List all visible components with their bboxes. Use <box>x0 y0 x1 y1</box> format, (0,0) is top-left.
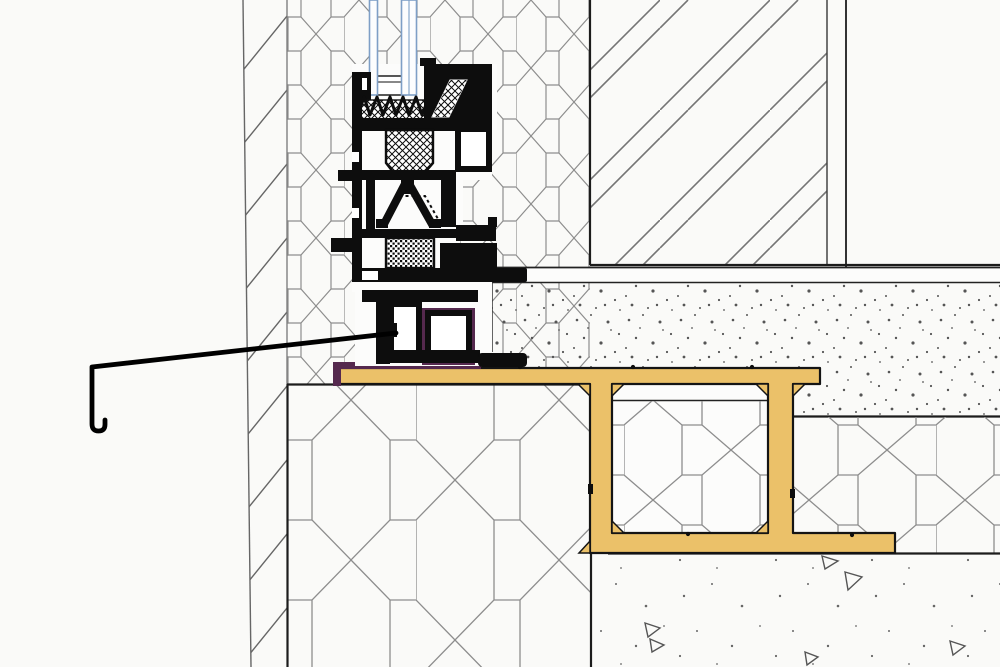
subsoil-stipple <box>592 554 1000 667</box>
foot-slot <box>362 271 378 280</box>
frame-left-wall <box>352 72 362 282</box>
thermal-break-grid-lower <box>386 238 434 268</box>
lower-insulation-block <box>287 384 592 667</box>
screed-stipple-right <box>793 368 1000 416</box>
linkage-hub <box>401 176 414 194</box>
technical-drawing <box>0 0 1000 667</box>
frame-foot-bar <box>352 268 527 282</box>
levelling-band <box>492 267 1000 283</box>
insulation-hatch-medium-channel <box>612 401 768 533</box>
base-plate <box>376 350 480 363</box>
left-wall-slot <box>352 208 359 218</box>
linkage-foot <box>376 219 388 228</box>
left-wall-slot <box>352 152 359 162</box>
linkage-foot <box>429 219 441 228</box>
frame-left-tab-upper <box>338 170 353 181</box>
frame-right-foot-mass <box>440 243 497 269</box>
screed-stipple-upper <box>492 283 1000 368</box>
insulation-hatch-large <box>287 384 590 667</box>
frame-strut-right <box>441 178 456 227</box>
sill-channel-interior <box>612 384 768 533</box>
frame-cross-bar-lower <box>362 229 460 238</box>
frame-strut-left <box>366 178 375 230</box>
thermal-break-hatch-upper <box>386 130 433 177</box>
frame-left-tab-lower <box>331 238 352 252</box>
bracket-lug <box>488 217 497 227</box>
fixing-bracket <box>456 225 496 241</box>
drawing-canvas <box>0 0 1000 667</box>
interior-ledge <box>478 353 527 367</box>
membrane-wrap <box>333 362 341 386</box>
right-chamber-void <box>461 132 486 166</box>
left-wall-strip <box>243 0 287 667</box>
subsoil-concrete <box>592 554 1000 667</box>
masonry-diagonal-hatch <box>590 0 827 265</box>
